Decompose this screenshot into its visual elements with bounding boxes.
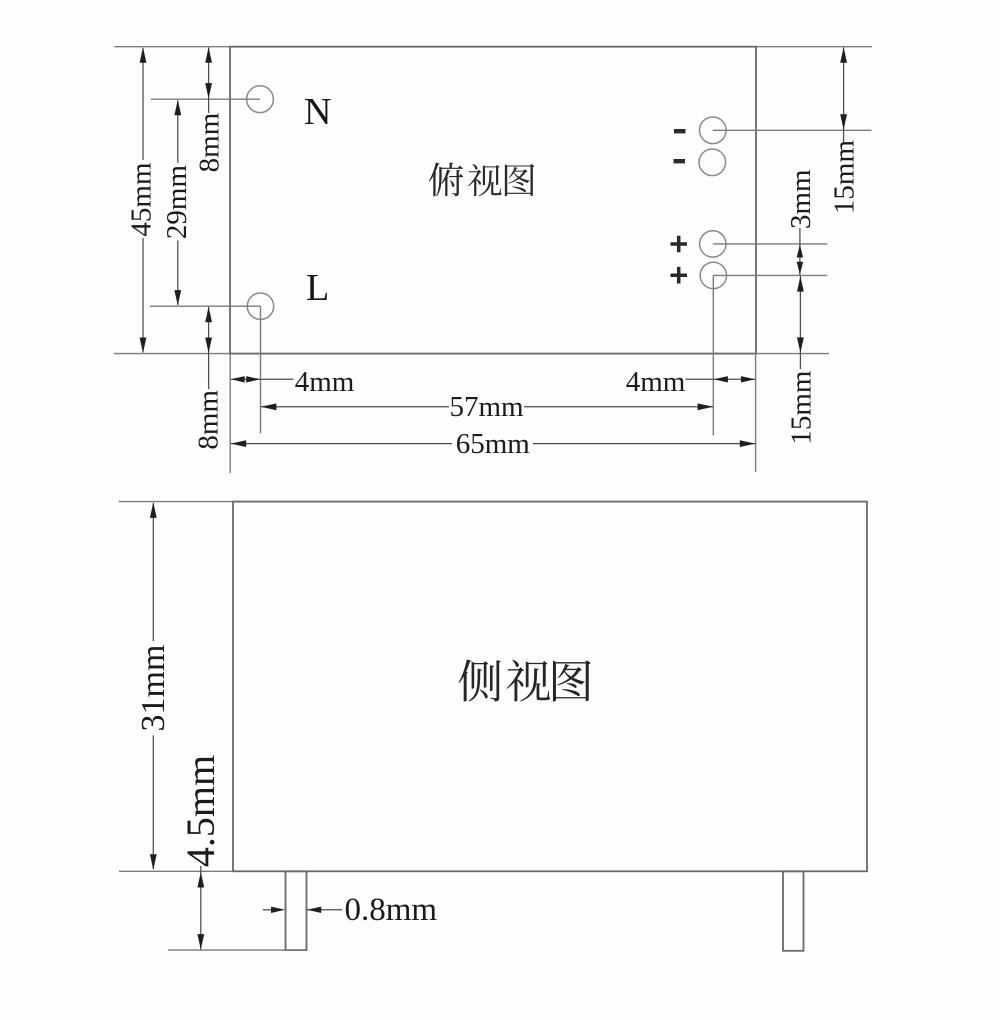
- svg-text:4.5mm: 4.5mm: [178, 755, 223, 867]
- svg-text:15mm: 15mm: [828, 140, 860, 215]
- svg-text:15mm: 15mm: [786, 370, 818, 445]
- svg-text:57mm: 57mm: [449, 391, 524, 423]
- svg-text:L: L: [306, 267, 329, 309]
- svg-text:31mm: 31mm: [135, 645, 172, 732]
- svg-text:0.8mm: 0.8mm: [345, 892, 438, 928]
- svg-text:N: N: [304, 91, 331, 133]
- svg-text:3mm: 3mm: [785, 169, 817, 229]
- svg-text:65mm: 65mm: [456, 428, 531, 460]
- svg-text:4mm: 4mm: [295, 366, 355, 398]
- svg-text:8mm: 8mm: [192, 390, 224, 450]
- svg-text:29mm: 29mm: [161, 165, 193, 240]
- svg-text:45mm: 45mm: [125, 162, 157, 237]
- svg-text:8mm: 8mm: [193, 112, 225, 172]
- svg-text:4mm: 4mm: [626, 366, 686, 398]
